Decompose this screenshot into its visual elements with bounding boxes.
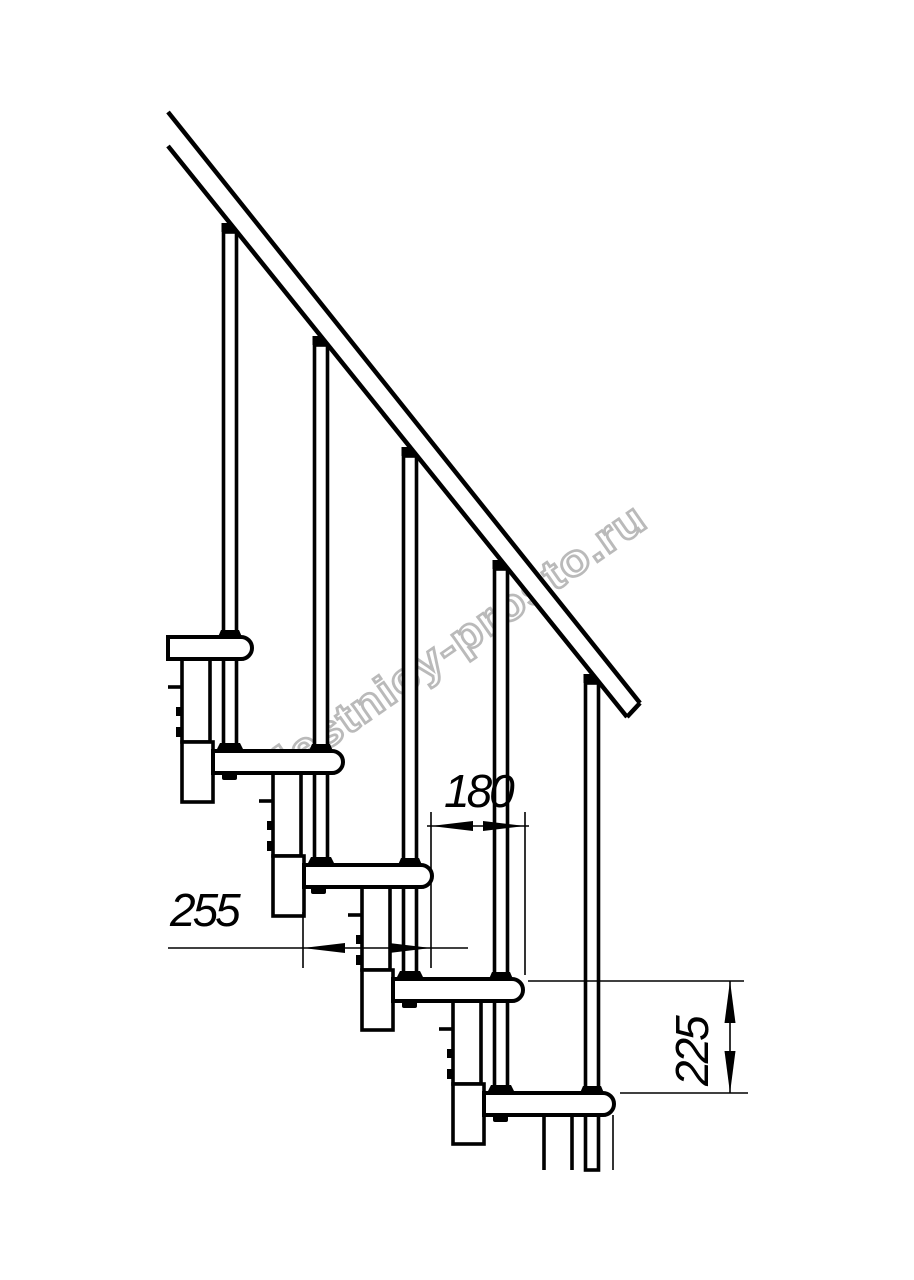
- baluster-1: [222, 223, 239, 751]
- baluster-collar: [580, 1086, 604, 1093]
- arrow-left-icon: [431, 821, 473, 831]
- baluster-collar: [398, 858, 422, 865]
- module-4-bolt-icon: [447, 1049, 454, 1058]
- dimension-label-step-rise: 225: [666, 1015, 718, 1087]
- module-2-bolt-icon: [267, 821, 274, 830]
- tread-5: [484, 1093, 614, 1115]
- baluster-collar: [309, 744, 333, 751]
- tread-clamp-bolt: [222, 773, 237, 780]
- dimension-label-step-run: 180: [444, 765, 515, 817]
- baluster-2: [313, 336, 330, 865]
- tread-3: [304, 865, 432, 887]
- arrow-down-icon: [725, 1051, 736, 1093]
- tread-4: [393, 979, 523, 1001]
- baluster-base-collar: [307, 857, 335, 865]
- module-1: [168, 659, 213, 802]
- arrow-left-icon: [303, 943, 345, 953]
- staircase-drawing-canvas: lestnicy-prosto.ru: [0, 0, 914, 1280]
- staircase-side-view-drawing: lestnicy-prosto.ru: [0, 0, 914, 1280]
- arrow-up-icon: [725, 981, 736, 1023]
- tread-clamp-bolt: [402, 1001, 417, 1008]
- dimension-step-rise-225: 225: [528, 981, 748, 1093]
- module-1-bolt-icon: [176, 707, 183, 716]
- module-5-cropped: [544, 1115, 613, 1170]
- module-2: [259, 773, 304, 916]
- tread-1: [168, 637, 252, 659]
- tread-2: [213, 751, 343, 773]
- baluster-collar: [218, 630, 242, 637]
- module-4: [439, 1001, 484, 1144]
- module-3: [348, 887, 393, 1030]
- baluster-collar: [489, 972, 513, 979]
- baluster-base-collar: [396, 971, 424, 979]
- balusters: [222, 223, 601, 1170]
- tread-clamp-bolt: [311, 887, 326, 894]
- tread-clamp-bolt: [493, 1115, 508, 1122]
- module-4-bolt-icon: [447, 1069, 454, 1079]
- dimension-label-tread-depth: 255: [169, 884, 241, 936]
- module-2-bolt-icon: [267, 841, 274, 851]
- module-3-bolt-icon: [356, 935, 363, 944]
- baluster-base-collar: [216, 743, 244, 751]
- dimension-step-run-180: 180: [427, 765, 529, 975]
- baluster-3: [402, 447, 419, 979]
- dimension-tread-depth-255: 255: [168, 884, 468, 968]
- module-1-bolt-icon: [176, 727, 183, 737]
- module-3-bolt-icon: [356, 955, 363, 965]
- baluster-base-collar: [487, 1085, 515, 1093]
